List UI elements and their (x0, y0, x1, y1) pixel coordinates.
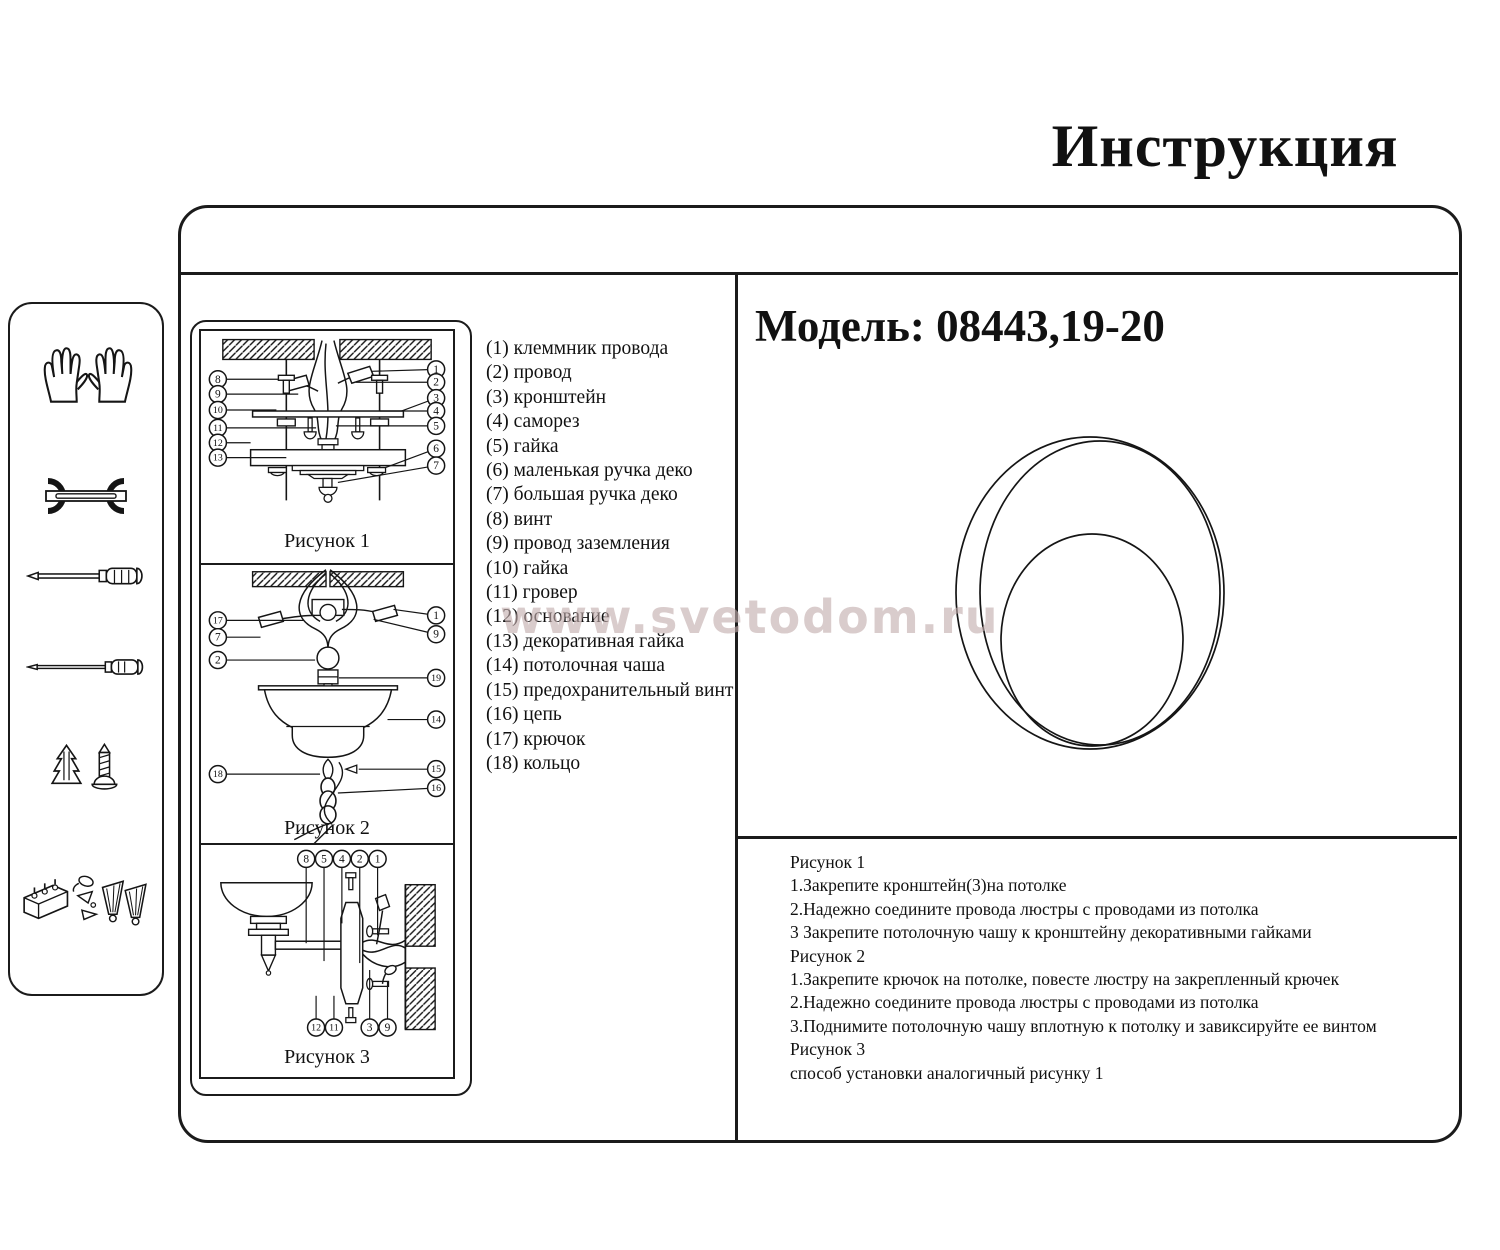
svg-text:2: 2 (357, 853, 363, 865)
terminal-blocks (284, 366, 373, 391)
svg-text:7: 7 (215, 632, 221, 644)
part-item: (6) маленькая ручка деко (486, 459, 738, 483)
instruction-line: 3 Закрепите потолочную чашу к кронштейну… (790, 921, 1450, 944)
svg-text:2: 2 (215, 655, 221, 667)
svg-text:9: 9 (215, 389, 221, 401)
svg-text:11: 11 (329, 1022, 339, 1033)
part-item: (3) кронштейн (486, 386, 738, 410)
svg-text:15: 15 (431, 765, 441, 776)
figure-3-caption: Рисунок 3 (201, 1046, 453, 1069)
figure-3-panel: 85421121139 Рисунок 3 (201, 845, 453, 1077)
svg-text:9: 9 (385, 1022, 391, 1034)
svg-text:4: 4 (339, 853, 345, 865)
svg-text:3: 3 (367, 1022, 373, 1034)
svg-text:16: 16 (431, 783, 441, 794)
part-item: (11) гровер (486, 581, 738, 605)
model-label: Модель: (755, 301, 925, 351)
model-value: 08443,19-20 (936, 301, 1165, 351)
figure-1-caption: Рисунок 1 (201, 530, 453, 553)
parts-list: (1) клеммник провода(2) провод(3) кроншт… (486, 337, 738, 776)
instruction-line: Рисунок 2 (790, 945, 1450, 968)
svg-text:5: 5 (433, 420, 439, 432)
part-item: (1) клеммник провода (486, 337, 738, 361)
page-title: Инструкция (1020, 112, 1430, 181)
instruction-line: 1.Закрепите крючок на потолке, повесте л… (790, 968, 1450, 991)
instruction-line: 3.Поднимите потолочную чашу вплотную к п… (790, 1015, 1450, 1038)
part-item: (12) основание (486, 605, 738, 629)
instruction-sheet: Инструкция (0, 0, 1500, 1250)
figure-2-diagram: 1772181919141516 (201, 565, 453, 842)
model-title: Модель: 08443,19-20 (755, 300, 1165, 352)
part-item: (16) цепь (486, 703, 738, 727)
part-item: (7) большая ручка деко (486, 483, 738, 507)
part-item: (17) крючок (486, 728, 738, 752)
part-item: (4) саморез (486, 410, 738, 434)
svg-text:11: 11 (213, 423, 223, 434)
instruction-line: 2.Надежно соедините провода люстры с про… (790, 898, 1450, 921)
instruction-line: 1.Закрепите кронштейн(3)на потолке (790, 874, 1450, 897)
gloves-icon (38, 338, 138, 414)
wall-hatch (405, 885, 435, 1030)
slim-screwdriver-icon (26, 651, 146, 683)
svg-text:7: 7 (433, 460, 439, 472)
wall-plug-and-screw-icon (46, 742, 128, 800)
instruction-line: способ установки аналогичный рисунку 1 (790, 1062, 1450, 1085)
lamp-drawing (940, 425, 1250, 765)
svg-text:8: 8 (215, 374, 221, 386)
header-divider (179, 272, 1458, 275)
part-item: (9) провод заземления (486, 532, 738, 556)
ceiling-hatch (223, 340, 431, 360)
part-item: (14) потолочная чаша (486, 654, 738, 678)
installation-instructions: Рисунок 11.Закрепите кронштейн(3)на пото… (790, 851, 1450, 1085)
part-item: (15) предохранительный винт (486, 679, 738, 703)
svg-text:10: 10 (213, 405, 223, 416)
screwdriver-icon (26, 560, 146, 592)
svg-text:8: 8 (303, 853, 309, 865)
part-item: (10) гайка (486, 557, 738, 581)
instruction-line: Рисунок 1 (790, 851, 1450, 874)
part-item: (18) кольцо (486, 752, 738, 776)
svg-text:5: 5 (321, 853, 327, 865)
instruction-line: Рисунок 3 (790, 1038, 1450, 1061)
glass-shade (221, 883, 312, 975)
figure-3-diagram: 85421121139 (201, 845, 453, 1077)
svg-text:14: 14 (431, 715, 441, 726)
svg-text:17: 17 (213, 616, 223, 627)
figures-panel: 89101112131234567 Рисунок 1 (199, 329, 455, 1079)
ceiling-hatch (253, 572, 404, 587)
part-item: (2) провод (486, 361, 738, 385)
svg-text:2: 2 (433, 377, 439, 389)
tools-sidebar (8, 302, 164, 996)
svg-text:12: 12 (311, 1022, 321, 1033)
svg-text:1: 1 (433, 610, 439, 622)
figure-2-panel: 1772181919141516 Рисунок 2 (201, 565, 453, 844)
part-item: (5) гайка (486, 435, 738, 459)
figure-2-caption: Рисунок 2 (201, 817, 453, 840)
part-item: (13) декоративная гайка (486, 630, 738, 654)
figure-1-panel: 89101112131234567 Рисунок 1 (201, 331, 453, 565)
part-item: (8) винт (486, 508, 738, 532)
wrench-icon (30, 474, 142, 518)
figure-1-diagram: 89101112131234567 (201, 331, 453, 563)
right-pane-divider (738, 836, 1457, 839)
svg-text:9: 9 (433, 629, 439, 641)
svg-text:1: 1 (375, 853, 381, 865)
ceiling-bowl (259, 648, 398, 758)
terminal-block-and-anchors-icon (20, 870, 150, 940)
svg-text:18: 18 (213, 770, 223, 781)
svg-text:12: 12 (213, 438, 223, 449)
svg-text:6: 6 (433, 443, 439, 455)
svg-text:4: 4 (433, 406, 439, 418)
svg-text:13: 13 (213, 453, 223, 464)
instruction-line: 2.Надежно соедините провода люстры с про… (790, 991, 1450, 1014)
svg-text:19: 19 (431, 673, 441, 684)
